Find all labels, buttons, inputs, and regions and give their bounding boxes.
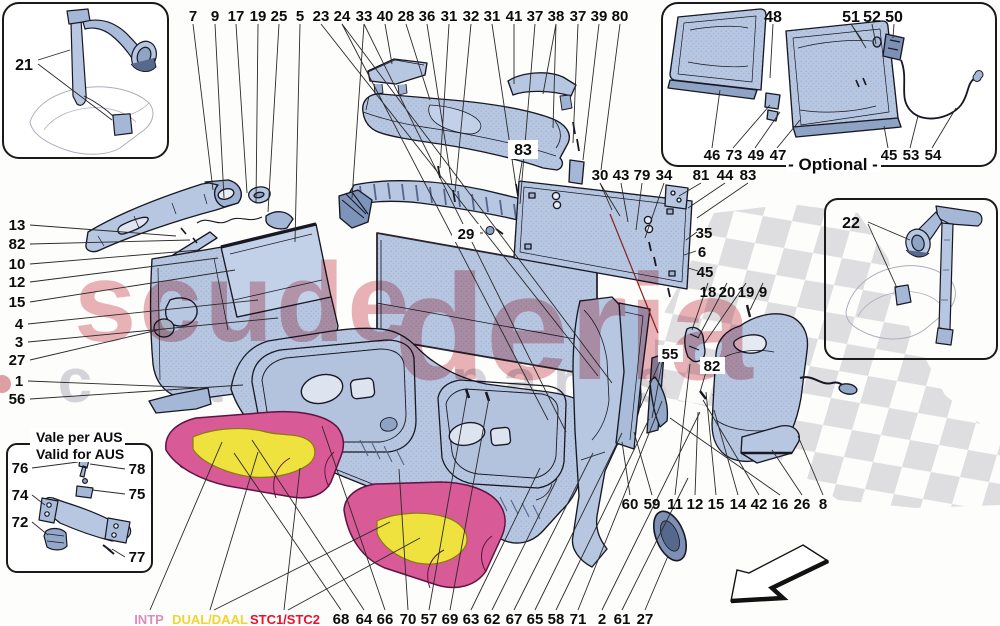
svg-text:9: 9	[211, 8, 219, 25]
svg-text:65: 65	[527, 611, 544, 626]
svg-text:64: 64	[356, 611, 373, 626]
svg-text:82: 82	[704, 358, 721, 375]
svg-text:15: 15	[9, 294, 26, 311]
svg-text:6: 6	[698, 244, 706, 261]
svg-text:76: 76	[12, 460, 29, 477]
svg-text:42: 42	[751, 496, 768, 513]
svg-text:2: 2	[598, 611, 606, 626]
svg-text:61: 61	[614, 611, 631, 626]
svg-text:77: 77	[129, 549, 146, 566]
svg-text:22: 22	[842, 215, 860, 232]
svg-text:81: 81	[693, 167, 710, 184]
svg-text:24: 24	[334, 8, 351, 25]
svg-text:27: 27	[637, 611, 654, 626]
svg-text:57: 57	[421, 611, 438, 626]
svg-text:19: 19	[250, 8, 267, 25]
svg-text:62: 62	[484, 611, 501, 626]
svg-text:78: 78	[129, 461, 146, 478]
svg-text:12: 12	[9, 274, 26, 291]
svg-text:71: 71	[570, 611, 587, 626]
svg-text:23: 23	[313, 8, 330, 25]
svg-text:5: 5	[296, 8, 304, 25]
svg-text:32: 32	[463, 8, 480, 25]
svg-text:20: 20	[719, 284, 736, 301]
svg-text:73: 73	[726, 147, 743, 164]
svg-text:58: 58	[548, 611, 565, 626]
svg-text:50: 50	[885, 9, 903, 26]
svg-text:13: 13	[9, 217, 26, 234]
svg-text:INTP: INTP	[134, 612, 164, 626]
svg-text:26: 26	[794, 496, 811, 513]
svg-text:56: 56	[9, 391, 26, 408]
svg-text:30: 30	[592, 167, 609, 184]
svg-text:36: 36	[419, 8, 436, 25]
svg-text:68: 68	[333, 611, 350, 626]
svg-text:DUAL/DAAL: DUAL/DAAL	[172, 612, 248, 626]
svg-text:1: 1	[15, 373, 23, 390]
svg-text:43: 43	[613, 167, 630, 184]
svg-text:67: 67	[506, 611, 523, 626]
svg-text:8: 8	[819, 496, 827, 513]
svg-text:41: 41	[506, 8, 523, 25]
svg-text:scude: scude	[74, 240, 413, 365]
svg-text:37: 37	[527, 8, 544, 25]
svg-text:21: 21	[15, 57, 33, 74]
svg-text:39: 39	[591, 8, 608, 25]
svg-text:27: 27	[9, 352, 26, 369]
svg-text:52: 52	[863, 9, 881, 26]
svg-text:83: 83	[740, 167, 757, 184]
svg-text:STC1/STC2: STC1/STC2	[250, 612, 320, 626]
svg-text:15: 15	[708, 496, 725, 513]
svg-text:19: 19	[738, 284, 755, 301]
svg-text:45: 45	[881, 147, 898, 164]
svg-text:Valid for AUS: Valid for AUS	[36, 446, 124, 462]
svg-text:17: 17	[228, 8, 245, 25]
svg-text:66: 66	[377, 611, 394, 626]
svg-text:45: 45	[697, 264, 714, 281]
svg-text:37: 37	[570, 8, 587, 25]
svg-text:46: 46	[704, 147, 721, 164]
svg-text:Vale per AUS: Vale per AUS	[36, 429, 123, 445]
svg-text:18: 18	[700, 284, 717, 301]
svg-text:83: 83	[514, 142, 532, 159]
svg-text:9: 9	[759, 284, 767, 301]
svg-text:28: 28	[398, 8, 415, 25]
svg-text:34: 34	[656, 167, 673, 184]
svg-text:47: 47	[770, 147, 787, 164]
svg-text:12: 12	[687, 496, 704, 513]
svg-text:48: 48	[764, 9, 782, 26]
svg-text:3: 3	[15, 334, 23, 351]
svg-text:- Optional -: - Optional -	[788, 155, 878, 174]
svg-text:4: 4	[15, 316, 24, 333]
svg-text:31: 31	[441, 8, 458, 25]
svg-text:49: 49	[748, 147, 765, 164]
svg-text:14: 14	[730, 496, 747, 513]
svg-text:40: 40	[377, 8, 394, 25]
svg-text:31: 31	[484, 8, 501, 25]
svg-text:55: 55	[662, 346, 679, 363]
svg-text:44: 44	[717, 167, 734, 184]
svg-text:38: 38	[548, 8, 565, 25]
svg-text:59: 59	[644, 496, 661, 513]
svg-text:60: 60	[622, 496, 639, 513]
svg-text:79: 79	[634, 167, 651, 184]
svg-text:63: 63	[463, 611, 480, 626]
svg-text:25: 25	[271, 8, 288, 25]
svg-text:53: 53	[903, 147, 920, 164]
svg-text:69: 69	[442, 611, 459, 626]
svg-text:51: 51	[842, 9, 860, 26]
svg-text:29: 29	[458, 226, 475, 243]
svg-text:7: 7	[189, 8, 197, 25]
svg-text:54: 54	[925, 147, 942, 164]
svg-text:35: 35	[696, 225, 713, 242]
svg-text:16: 16	[772, 496, 789, 513]
svg-text:82: 82	[9, 236, 26, 253]
svg-text:72: 72	[12, 514, 29, 531]
svg-text:33: 33	[356, 8, 373, 25]
svg-text:80: 80	[612, 8, 629, 25]
svg-text:10: 10	[9, 256, 26, 273]
svg-text:11: 11	[667, 496, 683, 513]
svg-text:74: 74	[12, 487, 29, 504]
svg-text:70: 70	[400, 611, 417, 626]
svg-text:75: 75	[129, 486, 146, 503]
